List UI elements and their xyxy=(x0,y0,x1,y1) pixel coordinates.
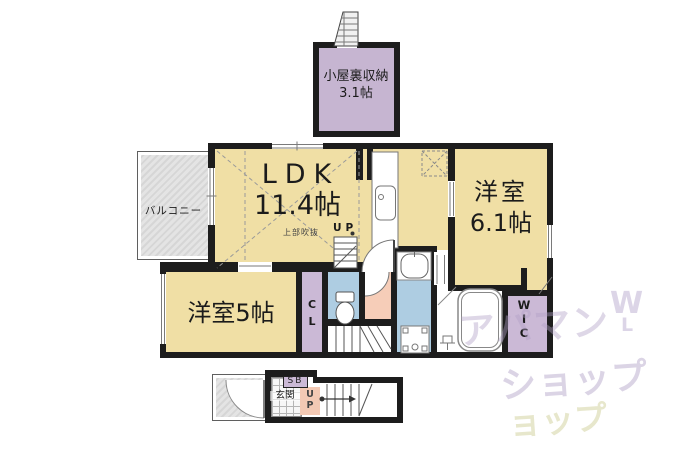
bath-corner-line xyxy=(438,287,456,305)
bathtub-icon xyxy=(458,289,502,351)
ldk-name-label: LDK xyxy=(228,160,373,190)
attic-ladder-icon xyxy=(334,12,358,46)
kitchen-sink-icon xyxy=(372,152,398,248)
bedroom5-label: 洋室5帖 xyxy=(166,300,296,326)
wic-label: WIC xyxy=(514,298,534,340)
bath-faucet-icon xyxy=(440,336,455,350)
bedroom61-size-label: 6.1帖 xyxy=(452,210,550,236)
washer-pan-icon xyxy=(401,326,429,353)
attic-size-label: 3.1帖 xyxy=(316,87,396,101)
void-note-label: 上部吹抜 xyxy=(283,229,319,238)
entrance-label: 玄関 xyxy=(270,391,300,401)
stairs-2f-treads xyxy=(336,326,391,352)
closet-label: CL xyxy=(304,296,320,330)
fridge-space xyxy=(422,151,447,176)
attic-stair-icon xyxy=(334,232,357,269)
up-1f-label: UP xyxy=(300,389,320,411)
ldk-size-label: 11.4帖 xyxy=(225,191,370,221)
bedroom61-name-label: 洋室 xyxy=(455,179,547,205)
door-arc-toilet xyxy=(365,272,389,296)
shoebox-label: SB xyxy=(283,377,308,387)
toilet-icon xyxy=(336,292,354,324)
stairs-direction-arrow xyxy=(320,396,357,403)
wic-door-line xyxy=(539,277,552,294)
balcony-label: バルコニー xyxy=(137,206,210,218)
door-arc-ldk-hall xyxy=(362,240,394,272)
up-2f-label: UP xyxy=(333,223,357,235)
attic-name-label: 小屋裏収納 xyxy=(316,70,396,84)
washbasin-icon xyxy=(397,252,431,280)
door-arc-entrance xyxy=(226,380,264,418)
floor-plan: 小屋裏収納 3.1帖 バルコニー LDK 11.4帖 上部吹抜 UP 洋室5帖 … xyxy=(0,0,690,460)
